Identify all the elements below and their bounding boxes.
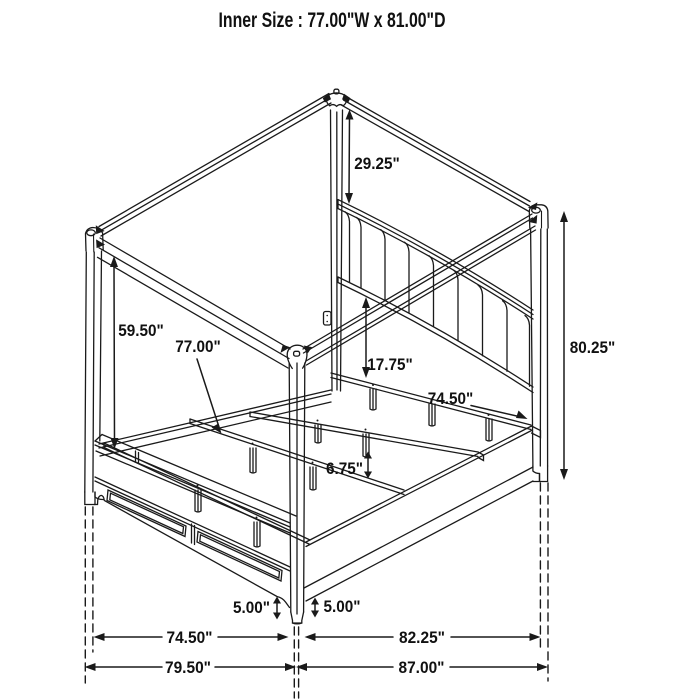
svg-text:6.75": 6.75": [326, 459, 363, 478]
svg-text:80.25": 80.25": [570, 338, 616, 357]
svg-text:79.50": 79.50": [165, 658, 211, 677]
svg-text:Inner Size : 77.00"W x 81.00"D: Inner Size : 77.00"W x 81.00"D: [219, 9, 446, 32]
svg-text:74.50": 74.50": [167, 628, 213, 647]
svg-text:77.00": 77.00": [175, 337, 221, 356]
svg-text:17.75": 17.75": [367, 355, 413, 374]
svg-text:82.25": 82.25": [399, 628, 445, 647]
svg-text:5.00": 5.00": [324, 597, 361, 616]
svg-text:29.25": 29.25": [354, 154, 400, 173]
svg-text:87.00": 87.00": [399, 658, 445, 677]
svg-text:5.00": 5.00": [233, 598, 270, 617]
svg-text:59.50": 59.50": [118, 321, 164, 340]
svg-text:74.50": 74.50": [428, 389, 474, 408]
